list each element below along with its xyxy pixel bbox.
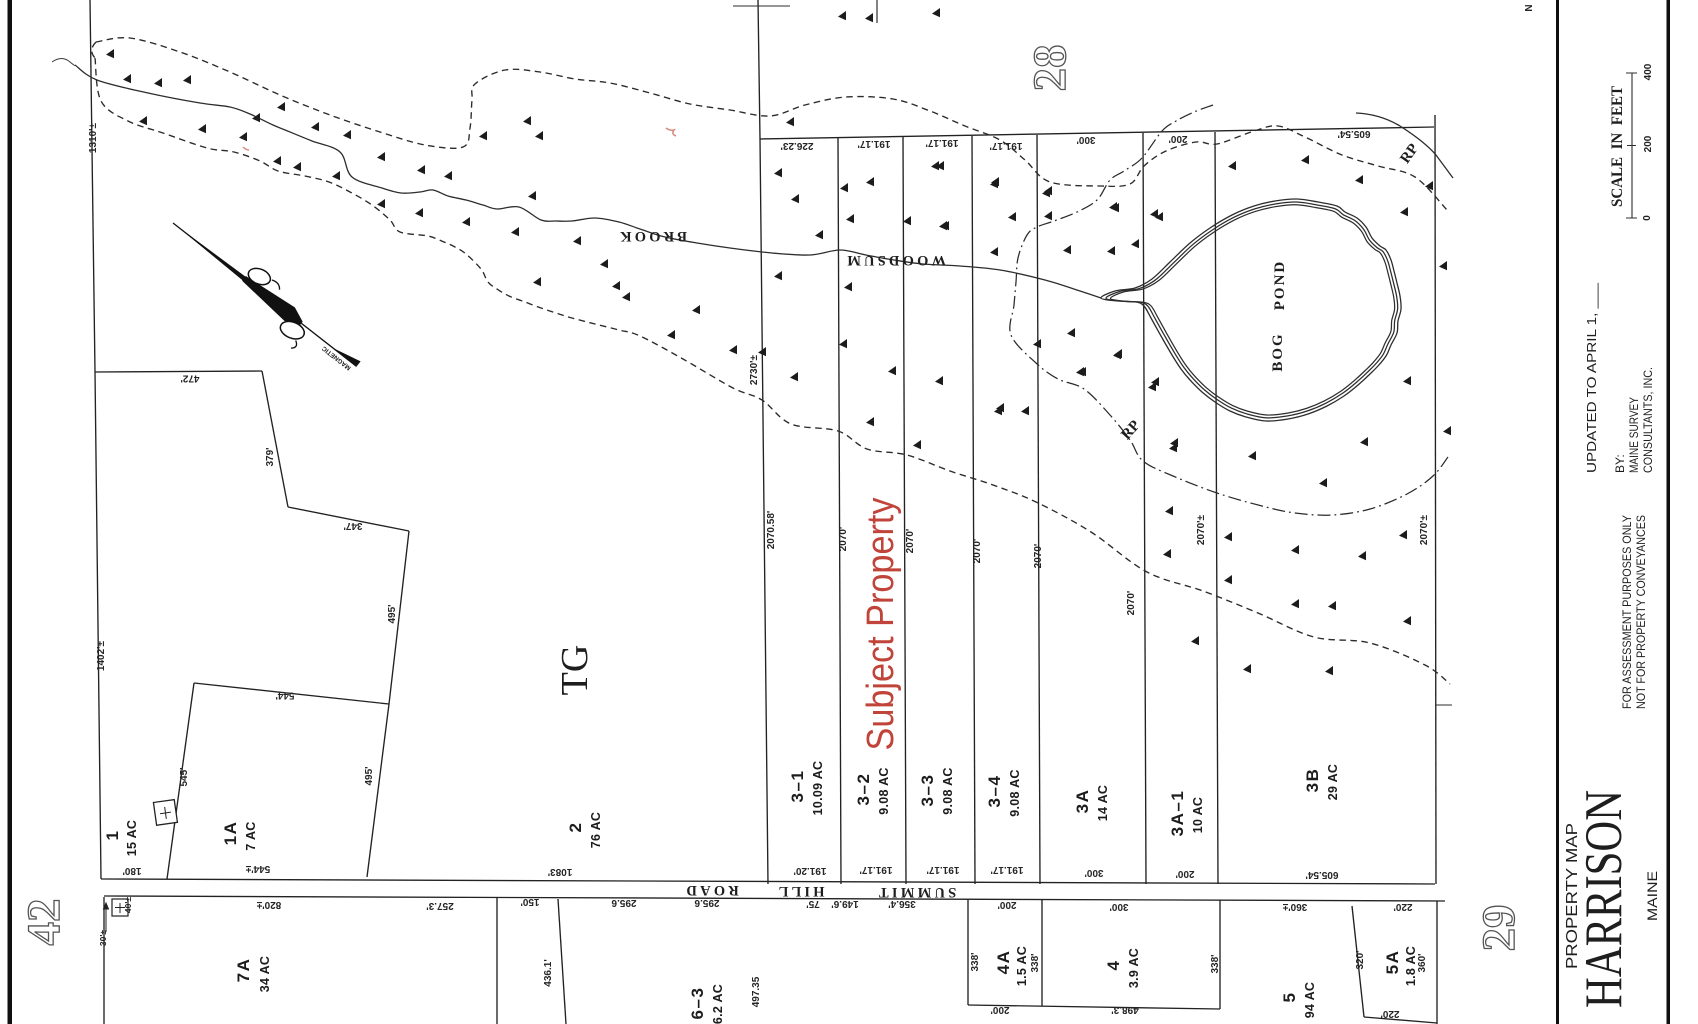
svg-text:1: 1 — [103, 830, 122, 841]
svg-text:472': 472' — [180, 373, 199, 384]
svg-text:191.17': 191.17' — [990, 140, 1023, 151]
svg-text:3B: 3B — [1303, 768, 1322, 793]
svg-text:2070': 2070' — [905, 529, 916, 554]
svg-text:2070'±: 2070'± — [1196, 514, 1207, 545]
svg-text:29 AC: 29 AC — [1326, 764, 1340, 800]
svg-text:200': 200' — [997, 899, 1016, 910]
svg-text:0: 0 — [1642, 215, 1653, 221]
svg-text:9.08 AC: 9.08 AC — [941, 767, 955, 815]
svg-text:191.20': 191.20' — [794, 865, 827, 876]
svg-text:CONSULTANTS, INC.: CONSULTANTS, INC. — [1641, 367, 1655, 473]
svg-text:226.23': 226.23' — [781, 140, 814, 151]
svg-text:9.08 AC: 9.08 AC — [1008, 769, 1022, 817]
svg-text:4A: 4A — [994, 950, 1013, 975]
svg-text:N: N — [1524, 4, 1535, 11]
svg-text:544': 544' — [275, 690, 294, 701]
svg-text:34 AC: 34 AC — [258, 956, 272, 992]
svg-text:76 AC: 76 AC — [589, 812, 603, 848]
svg-text:MAINE: MAINE — [1644, 871, 1660, 921]
svg-text:1083': 1083' — [548, 866, 573, 877]
svg-text:BROOK: BROOK — [617, 228, 687, 244]
svg-text:338': 338' — [970, 952, 981, 971]
svg-text:SUMMIT: SUMMIT — [876, 884, 956, 900]
svg-text:3A: 3A — [1073, 789, 1092, 814]
svg-text:TG: TG — [554, 645, 596, 696]
svg-text:360': 360' — [1417, 953, 1428, 972]
svg-text:POND: POND — [1272, 260, 1288, 311]
svg-text:545': 545' — [179, 767, 190, 786]
svg-text:28: 28 — [1024, 45, 1076, 92]
svg-text:605.54': 605.54' — [1338, 128, 1371, 139]
svg-text:200': 200' — [1168, 133, 1187, 144]
svg-text:191.17': 191.17' — [991, 864, 1024, 875]
svg-text:338': 338' — [1030, 953, 1041, 972]
svg-text:7A: 7A — [234, 958, 253, 983]
svg-text:2070': 2070' — [972, 539, 983, 564]
svg-text:200': 200' — [1175, 868, 1194, 879]
svg-text:NOT FOR PROPERTY CONVEYANCES: NOT FOR PROPERTY CONVEYANCES — [1634, 515, 1648, 709]
svg-text:498.3': 498.3' — [1111, 1004, 1138, 1015]
svg-text:300': 300' — [1076, 134, 1095, 145]
svg-text:2070': 2070' — [1126, 591, 1137, 616]
svg-text:1A: 1A — [221, 821, 240, 846]
svg-text:Subject Property: Subject Property — [860, 498, 902, 751]
svg-text:257.3': 257.3' — [426, 900, 453, 911]
svg-text:5: 5 — [1280, 992, 1299, 1003]
svg-text:WOODSUM: WOODSUM — [844, 252, 946, 268]
svg-text:42: 42 — [18, 899, 70, 946]
svg-text:220': 220' — [1393, 901, 1412, 912]
svg-text:191.17': 191.17' — [860, 864, 893, 875]
svg-text:3–1: 3–1 — [788, 770, 807, 803]
svg-text:6.2 AC: 6.2 AC — [711, 984, 725, 1024]
svg-text:495': 495' — [387, 604, 398, 623]
svg-text:HILL: HILL — [775, 883, 824, 899]
svg-text:2070': 2070' — [838, 527, 849, 552]
svg-text:3.9 AC: 3.9 AC — [1127, 948, 1141, 988]
svg-text:4: 4 — [1104, 960, 1123, 971]
svg-text:29: 29 — [1473, 905, 1525, 952]
svg-text:495': 495' — [364, 766, 375, 785]
svg-text:BY:: BY: — [1613, 454, 1627, 473]
svg-text:497.35: 497.35 — [751, 976, 762, 1007]
svg-text:1.5 AC: 1.5 AC — [1015, 946, 1029, 986]
svg-text:6–3: 6–3 — [688, 987, 707, 1020]
svg-text:300': 300' — [1109, 901, 1128, 912]
svg-text:7 AC: 7 AC — [244, 821, 258, 850]
svg-text:30'±: 30'± — [98, 930, 108, 946]
svg-text:191.17': 191.17' — [926, 137, 959, 148]
svg-text:HARRISON: HARRISON — [1575, 790, 1633, 1008]
svg-text:820'±: 820'± — [256, 899, 281, 910]
svg-text:10 AC: 10 AC — [1191, 797, 1205, 833]
svg-text:14 AC: 14 AC — [1096, 785, 1110, 821]
svg-text:200': 200' — [990, 1004, 1009, 1015]
svg-text:3–3: 3–3 — [918, 774, 937, 807]
svg-text:5A: 5A — [1383, 950, 1402, 975]
svg-text:544'±: 544'± — [245, 863, 270, 874]
svg-text:200: 200 — [1643, 135, 1654, 152]
svg-text:40'±: 40'± — [123, 897, 133, 913]
svg-text:400: 400 — [1643, 63, 1654, 80]
svg-text:15 AC: 15 AC — [125, 820, 139, 856]
svg-text:220': 220' — [1380, 1008, 1399, 1019]
svg-text:1.8 AC: 1.8 AC — [1404, 946, 1418, 986]
svg-text:2: 2 — [566, 822, 585, 833]
svg-text:UPDATED TO APRIL 1, ___: UPDATED TO APRIL 1, ___ — [1584, 282, 1599, 473]
svg-text:2070.58': 2070.58' — [766, 511, 777, 550]
svg-text:295.6: 295.6 — [611, 897, 636, 908]
svg-text:FOR ASSESSMENT PURPOSES ONLY: FOR ASSESSMENT PURPOSES ONLY — [1620, 515, 1634, 709]
svg-text:180': 180' — [122, 865, 141, 876]
svg-text:379': 379' — [265, 447, 276, 466]
svg-text:2730'±: 2730'± — [749, 354, 760, 385]
svg-text:ROAD: ROAD — [683, 882, 739, 898]
svg-text:338': 338' — [1210, 954, 1221, 973]
svg-text:94 AC: 94 AC — [1303, 982, 1317, 1018]
svg-text:320': 320' — [1355, 950, 1366, 969]
svg-text:360'±: 360'± — [1282, 901, 1307, 912]
svg-text:1402'±: 1402'± — [96, 640, 107, 671]
svg-text:10.09 AC: 10.09 AC — [811, 761, 825, 816]
svg-text:9.08 AC: 9.08 AC — [877, 767, 891, 815]
svg-text:2070': 2070' — [1033, 544, 1044, 569]
svg-text:347': 347' — [343, 520, 362, 531]
svg-text:3A–1: 3A–1 — [1168, 790, 1187, 837]
svg-text:300': 300' — [1084, 867, 1103, 878]
svg-text:2070'±: 2070'± — [1419, 514, 1430, 545]
svg-text:191.17': 191.17' — [927, 864, 960, 875]
svg-text:1310'±: 1310'± — [88, 122, 99, 153]
svg-text:SCALE IN FEET: SCALE IN FEET — [1609, 85, 1626, 207]
svg-text:BOG: BOG — [1270, 332, 1286, 371]
svg-text:3–4: 3–4 — [985, 775, 1004, 808]
svg-text:150': 150' — [520, 896, 539, 907]
svg-text:MAINE SURVEY: MAINE SURVEY — [1627, 397, 1641, 473]
svg-text:191.17': 191.17' — [858, 138, 891, 149]
svg-text:3–2: 3–2 — [854, 773, 873, 806]
svg-text:605.54': 605.54' — [1306, 869, 1339, 880]
svg-text:149.6': 149.6' — [831, 898, 858, 909]
svg-text:436.1': 436.1' — [543, 959, 554, 986]
